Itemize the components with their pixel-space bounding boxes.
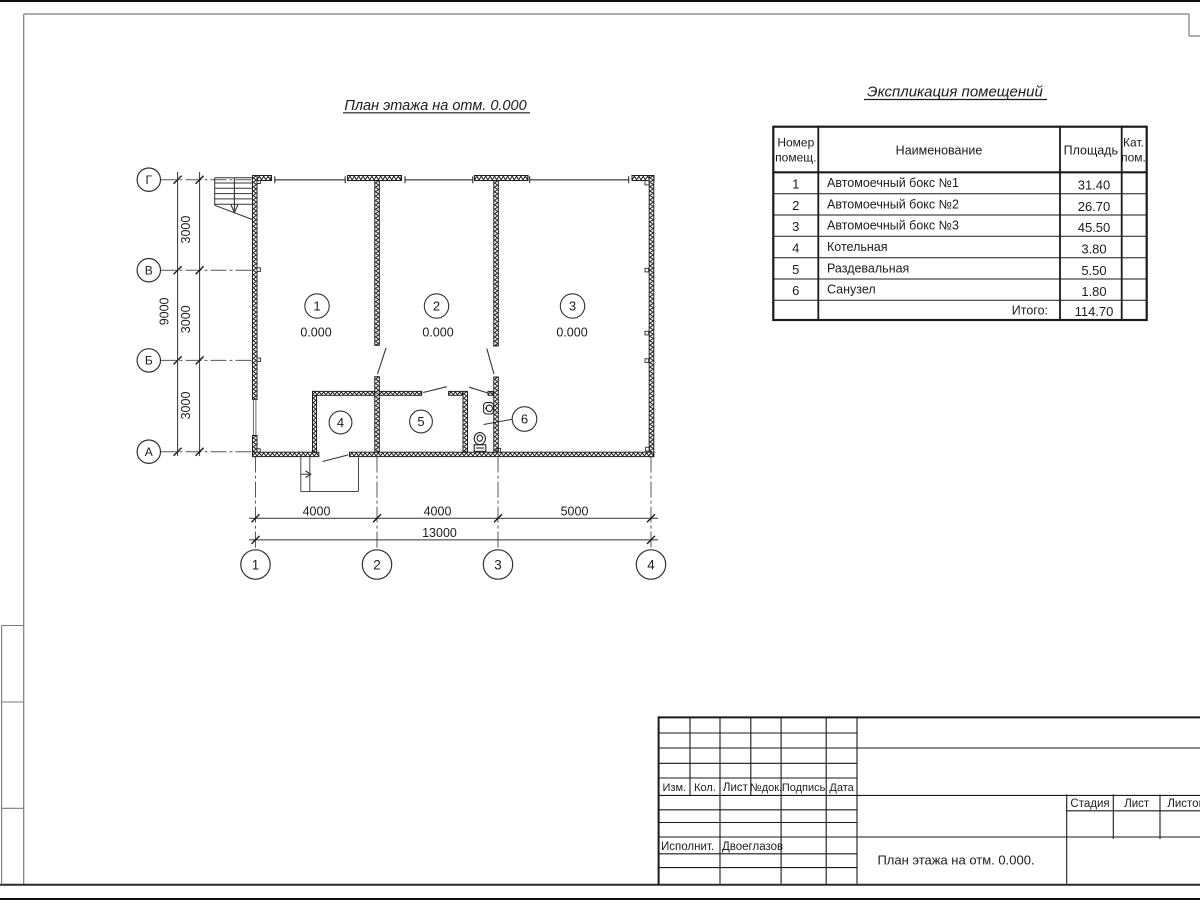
svg-text:План этажа на отм. 0.000: План этажа на отм. 0.000 — [344, 98, 526, 114]
svg-text:5: 5 — [417, 414, 424, 429]
svg-text:План этажа на отм. 0.000.: План этажа на отм. 0.000. — [877, 853, 1034, 868]
svg-text:Изм.: Изм. — [663, 782, 687, 794]
svg-text:Б: Б — [145, 354, 153, 368]
svg-text:Листов: Листов — [1167, 798, 1200, 810]
svg-text:Дата: Дата — [829, 782, 854, 794]
svg-text:31.40: 31.40 — [1078, 178, 1111, 193]
svg-text:Двоеглазов: Двоеглазов — [722, 841, 783, 853]
svg-text:3000: 3000 — [179, 305, 193, 333]
svg-text:Площадь: Площадь — [1064, 144, 1118, 158]
svg-text:Раздевальная: Раздевальная — [827, 261, 909, 275]
svg-text:В: В — [145, 264, 153, 278]
svg-text:4: 4 — [647, 558, 655, 573]
svg-text:3: 3 — [792, 219, 799, 234]
svg-text:2: 2 — [792, 198, 799, 213]
svg-text:3000: 3000 — [179, 216, 193, 244]
svg-text:Лист: Лист — [723, 782, 749, 794]
svg-text:2: 2 — [433, 299, 440, 314]
svg-text:Исполнит.: Исполнит. — [661, 841, 714, 853]
svg-text:5.50: 5.50 — [1081, 263, 1106, 278]
svg-text:4: 4 — [792, 241, 799, 256]
svg-text:Подпись: Подпись — [782, 782, 826, 794]
svg-text:Санузел: Санузел — [827, 283, 876, 297]
svg-text:Стадия: Стадия — [1070, 798, 1109, 810]
svg-text:Номер: Номер — [777, 136, 814, 150]
svg-text:3000: 3000 — [179, 392, 193, 420]
svg-text:5: 5 — [792, 262, 799, 277]
svg-text:1: 1 — [792, 177, 799, 192]
svg-text:9000: 9000 — [158, 297, 172, 325]
svg-text:Автомоечный бокс №2: Автомоечный бокс №2 — [827, 197, 959, 211]
svg-text:3: 3 — [494, 558, 502, 573]
svg-text:45.50: 45.50 — [1078, 220, 1111, 235]
svg-text:2: 2 — [373, 558, 381, 573]
svg-text:3.80: 3.80 — [1081, 242, 1106, 257]
svg-text:№док.: №док. — [750, 782, 782, 794]
svg-text:0.000: 0.000 — [422, 326, 453, 340]
svg-text:Котельная: Котельная — [827, 240, 888, 254]
svg-text:4: 4 — [337, 415, 344, 430]
svg-text:1: 1 — [313, 299, 320, 314]
svg-text:А: А — [145, 445, 153, 459]
svg-text:Г: Г — [146, 173, 153, 187]
svg-text:Автомоечный бокс №1: Автомоечный бокс №1 — [827, 176, 959, 190]
svg-text:6: 6 — [792, 283, 799, 298]
svg-text:1.80: 1.80 — [1081, 284, 1106, 299]
svg-text:0.000: 0.000 — [300, 326, 331, 340]
svg-text:Кол.: Кол. — [694, 782, 716, 794]
svg-text:Наименование: Наименование — [896, 144, 983, 158]
svg-text:пом.: пом. — [1121, 151, 1146, 165]
svg-text:26.70: 26.70 — [1078, 199, 1111, 214]
svg-text:4000: 4000 — [303, 505, 331, 519]
svg-text:помещ.: помещ. — [775, 151, 816, 165]
svg-text:3: 3 — [569, 299, 576, 314]
svg-text:6: 6 — [521, 412, 528, 427]
svg-text:Итого:: Итого: — [1012, 304, 1048, 318]
svg-text:4000: 4000 — [424, 505, 452, 519]
svg-text:Экспликация помещений: Экспликация помещений — [867, 84, 1043, 101]
svg-text:114.70: 114.70 — [1075, 304, 1114, 319]
svg-text:5000: 5000 — [561, 505, 589, 519]
svg-text:1: 1 — [252, 558, 260, 573]
svg-text:13000: 13000 — [422, 526, 457, 540]
svg-text:Автомоечный бокс №3: Автомоечный бокс №3 — [827, 219, 959, 233]
svg-text:0.000: 0.000 — [556, 326, 587, 340]
svg-text:Лист: Лист — [1124, 798, 1150, 810]
svg-text:Кат.: Кат. — [1123, 136, 1144, 150]
